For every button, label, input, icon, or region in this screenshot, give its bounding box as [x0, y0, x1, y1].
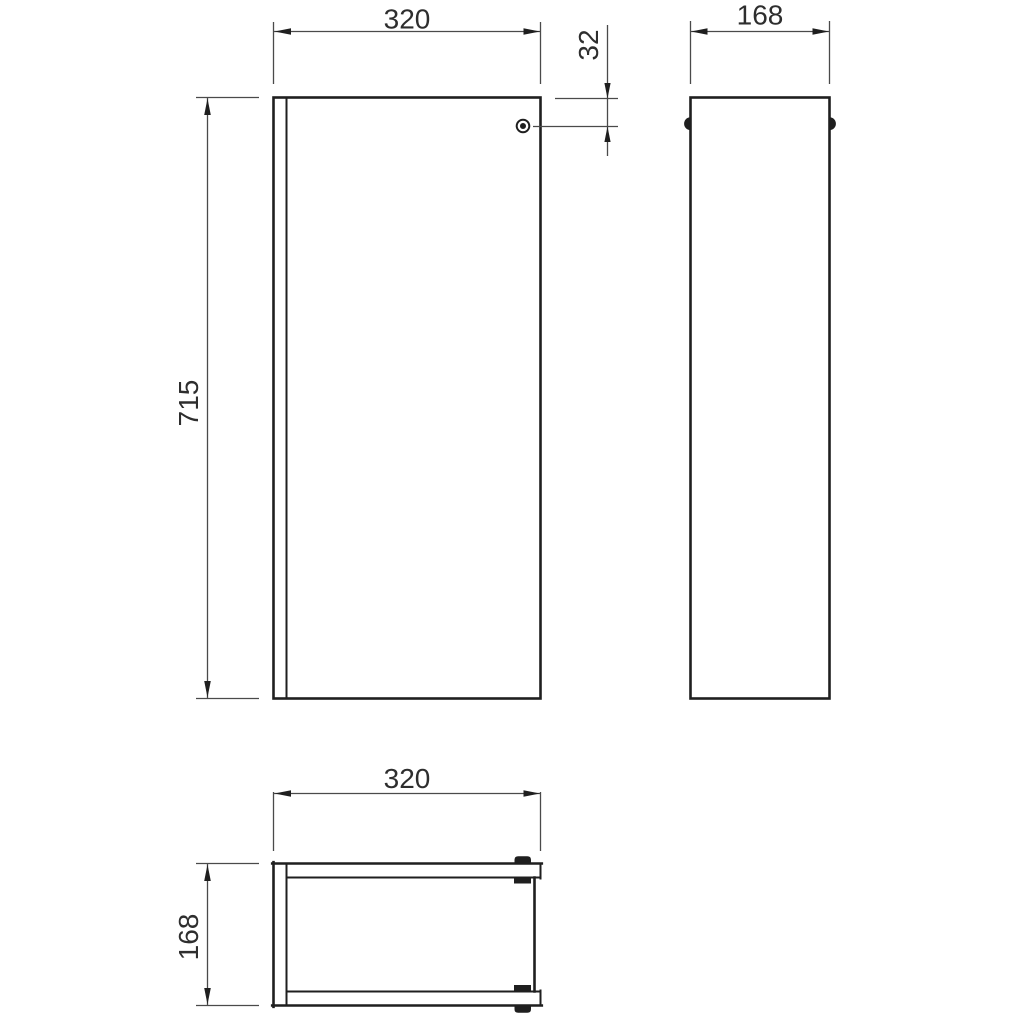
arrowhead-right-icon [524, 28, 541, 35]
plan-width-dimension: 320 [274, 763, 541, 851]
side-view-outline [691, 98, 830, 699]
front-height-dimension: 715 [173, 98, 259, 699]
arrowhead-up-icon [604, 127, 610, 143]
arrowhead-up-icon [204, 865, 211, 882]
front-width-dimension: 320 [274, 4, 541, 85]
front-width-label: 320 [384, 4, 431, 35]
arrowhead-down-icon [604, 83, 610, 99]
arrowhead-right-icon [813, 28, 830, 35]
arrowhead-up-icon [204, 99, 211, 116]
arrowhead-down-icon [204, 681, 211, 698]
arrowhead-right-icon [524, 790, 541, 797]
knob-bump-bottom-icon [515, 1006, 532, 1013]
front-view-outline [274, 98, 541, 699]
side-depth-dimension: 168 [691, 0, 830, 84]
arrowhead-left-icon [275, 28, 292, 35]
arrowhead-left-icon [275, 790, 292, 797]
wall-bracket-bump-right-icon [829, 117, 835, 130]
arrowhead-left-icon [691, 28, 708, 35]
front-view: 320 715 32 [173, 4, 618, 699]
technical-drawing-canvas: 320 715 32 [0, 0, 1024, 1024]
side-view: 168 [684, 0, 836, 699]
side-depth-label: 168 [737, 0, 784, 31]
front-height-label: 715 [173, 380, 204, 427]
knob-bump-top-icon [515, 856, 532, 863]
door-handle-knob-center [520, 123, 526, 129]
hinge-plate-top-icon [514, 878, 531, 884]
plan-depth-label: 168 [173, 914, 204, 961]
plan-depth-dimension: 168 [173, 864, 259, 1006]
wall-bracket-bump-left-icon [684, 117, 690, 130]
plan-width-label: 320 [384, 763, 431, 794]
plan-view: 320 168 [173, 763, 542, 1013]
handle-offset-label: 32 [573, 29, 604, 60]
hinge-plate-bottom-icon [514, 985, 531, 991]
handle-offset-dimension: 32 [533, 25, 618, 156]
arrowhead-down-icon [204, 988, 211, 1005]
